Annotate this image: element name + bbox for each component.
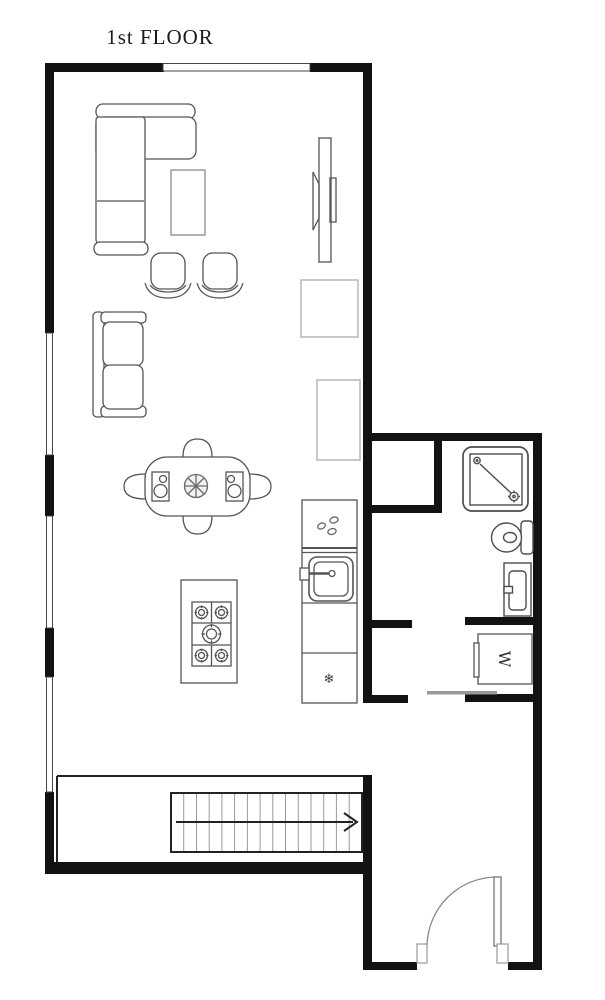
table-centerpiece <box>185 475 208 498</box>
laundry-wall-stub-left-bottom <box>363 695 408 703</box>
dining-chair-bottom <box>183 516 212 534</box>
dining-chair-right <box>249 474 271 499</box>
entry-door <box>417 877 508 963</box>
tv-unit <box>313 138 336 262</box>
dining-chair-left <box>124 474 146 499</box>
sliding-door <box>427 691 497 695</box>
freezer-snowflake-icon: ❄ <box>324 672 335 687</box>
armchair-2 <box>197 253 243 298</box>
built-in-cabinet-2 <box>317 380 360 460</box>
door-swing-arc <box>427 877 497 946</box>
kitchen-counter: ❄ <box>300 500 357 703</box>
floor-plan-page: 1st FLOOR <box>0 0 605 1000</box>
laundry: W <box>427 634 532 695</box>
toilet <box>492 521 534 554</box>
window-left-2 <box>47 516 53 628</box>
door-jamb-left <box>417 944 427 963</box>
closet-right-wall <box>434 433 442 513</box>
window-top <box>163 64 310 72</box>
laundry-wall-stub-left-top <box>363 620 412 628</box>
windows <box>47 64 311 793</box>
floor-title: 1st FLOOR <box>106 25 214 49</box>
coffee-table <box>171 170 205 235</box>
door-leaf <box>494 877 501 946</box>
floor-plan: 1st FLOOR <box>0 0 605 1000</box>
dining-set <box>124 439 271 534</box>
laundry-wall-right-bottom <box>465 694 542 702</box>
closet-bottom-wall <box>363 505 442 513</box>
armchair-1 <box>145 253 191 298</box>
shower <box>463 447 528 511</box>
laundry-wall-right-top <box>465 617 542 625</box>
window-left-3 <box>47 677 53 792</box>
island-stove <box>181 580 237 683</box>
built-in-cabinet-1 <box>301 280 358 337</box>
washing-machine: W <box>474 634 532 684</box>
loveseat <box>93 312 146 417</box>
living-area <box>93 104 360 460</box>
dining-chair-top <box>183 439 212 457</box>
bathroom-sink-vanity <box>504 563 531 616</box>
sectional-sofa <box>94 104 196 255</box>
bathroom <box>463 447 533 616</box>
washer-label: W <box>495 651 514 668</box>
window-left-1 <box>47 333 53 455</box>
stairs <box>57 776 363 862</box>
door-jamb-right <box>497 944 508 963</box>
